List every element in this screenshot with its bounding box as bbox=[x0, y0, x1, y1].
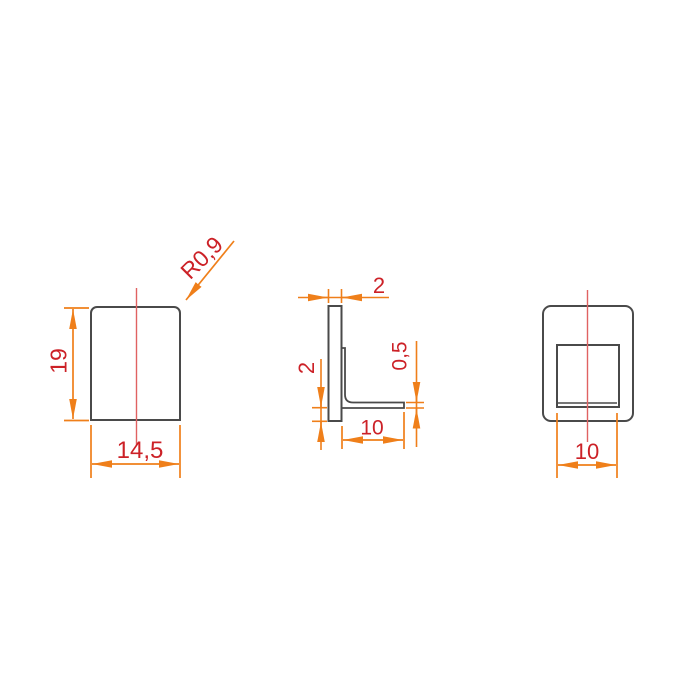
front-height-label: 19 bbox=[48, 348, 71, 374]
side-bottom-lip-label: 2 bbox=[296, 362, 318, 374]
side-flange-thickness-label: 0,5 bbox=[390, 341, 411, 370]
side-flange-length-label: 10 bbox=[360, 418, 383, 439]
front-width-label: 14,5 bbox=[117, 439, 164, 463]
drawing-geometry bbox=[0, 0, 700, 700]
side-view-outline bbox=[329, 306, 342, 421]
front-view-outline bbox=[91, 307, 180, 420]
technical-drawing-sheet: 19 14,5 R0,9 2 2 0,5 10 10 bbox=[0, 0, 700, 700]
side-wall-thickness-label: 2 bbox=[373, 275, 385, 297]
back-opening-width-label: 10 bbox=[575, 441, 599, 463]
